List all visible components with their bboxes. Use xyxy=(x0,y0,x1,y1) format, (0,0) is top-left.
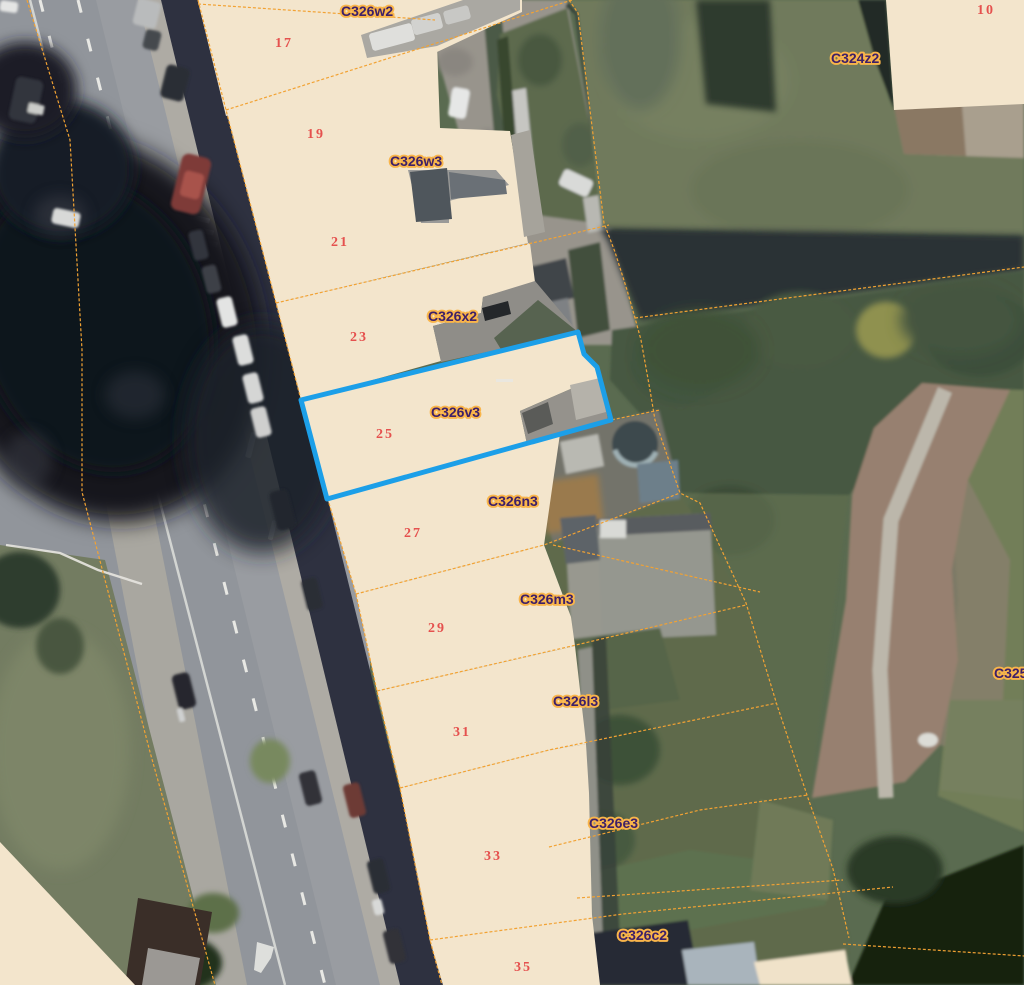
svg-text:C326v3: C326v3 xyxy=(431,404,480,420)
svg-text:31: 31 xyxy=(453,725,471,740)
svg-text:C324z2: C324z2 xyxy=(831,50,879,66)
svg-text:C326e3: C326e3 xyxy=(589,815,638,831)
svg-text:23: 23 xyxy=(350,330,368,345)
svg-text:17: 17 xyxy=(275,36,293,51)
svg-text:C326x2: C326x2 xyxy=(428,308,477,324)
svg-text:C326m3: C326m3 xyxy=(520,591,574,607)
svg-text:C326c2: C326c2 xyxy=(618,927,667,943)
svg-text:C326w2: C326w2 xyxy=(341,3,393,19)
svg-text:C326w3: C326w3 xyxy=(390,153,442,169)
svg-text:C326n3: C326n3 xyxy=(488,493,538,509)
svg-text:27: 27 xyxy=(404,526,422,541)
svg-text:19: 19 xyxy=(307,127,325,142)
svg-text:21: 21 xyxy=(331,235,349,250)
svg-text:35: 35 xyxy=(514,960,532,975)
svg-text:C326l3: C326l3 xyxy=(553,693,598,709)
svg-text:33: 33 xyxy=(484,849,502,864)
svg-text:10: 10 xyxy=(977,3,995,18)
svg-text:29: 29 xyxy=(428,621,446,636)
svg-text:C325: C325 xyxy=(994,665,1024,681)
svg-text:25: 25 xyxy=(376,427,394,442)
